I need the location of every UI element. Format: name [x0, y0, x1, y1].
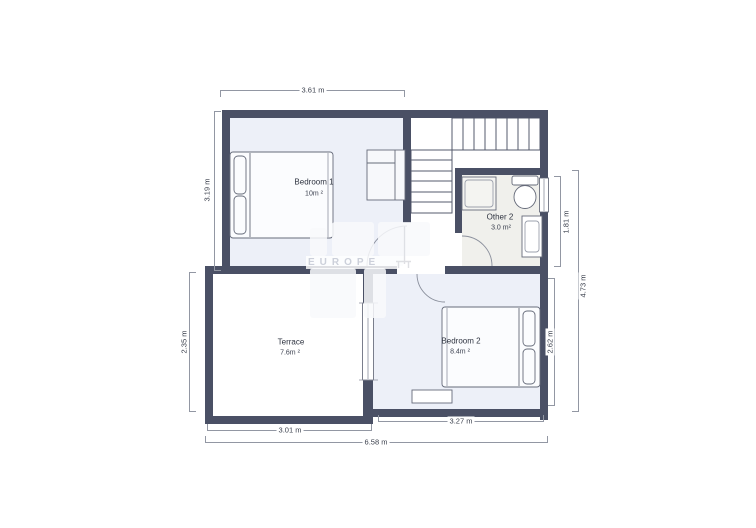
pillow: [523, 311, 535, 346]
dim-label-right-overall: 4.73 m: [579, 273, 588, 300]
wall-terrace-left: [205, 266, 213, 424]
bed-bedroom2: [442, 307, 540, 387]
window-other2: [540, 178, 549, 212]
wall-bedroom1-left: [222, 110, 230, 274]
dim-label-top-bedroom1: 3.61 m: [300, 86, 327, 95]
wall-other2-bottom: [445, 266, 548, 274]
dim-label-right-bedroom2: 2.62 m: [546, 329, 555, 356]
dim-label-left-terrace: 2.35 m: [180, 329, 189, 356]
wall-right: [540, 110, 548, 420]
pillow: [234, 196, 246, 234]
dim-label-left-bedroom1: 3.19 m: [203, 177, 212, 204]
room-area-bedroom1: 10m ²: [305, 191, 323, 198]
room-label-other2: Other 2: [487, 213, 514, 222]
dim-line-left-bedroom1: [214, 111, 221, 271]
dresser-bedroom2: [412, 390, 452, 403]
room-label-bedroom2: Bedroom 2: [441, 337, 480, 346]
wall-top: [222, 110, 548, 118]
watermark-logo-block: [310, 228, 327, 256]
watermark-logo-block: [332, 222, 374, 256]
watermark-logo-block: [378, 222, 430, 256]
wall-other2-left: [455, 168, 462, 233]
wardrobe-bedroom1: [367, 150, 405, 200]
watermark-text: EUROPE: [308, 256, 380, 269]
dim-label-bottom-terrace: 3.01 m: [277, 426, 304, 435]
room-label-bedroom1: Bedroom 1: [294, 178, 333, 187]
toilet-other2: [512, 176, 538, 209]
shower-other2: [462, 177, 496, 210]
room-label-terrace: Terrace: [278, 338, 305, 347]
wall-other2-top: [455, 168, 548, 175]
dim-line-left-terrace: [189, 272, 196, 412]
room-area-other2: 3.0 m²: [491, 225, 511, 232]
pillow: [523, 349, 535, 384]
dim-label-bottom-overall: 6.58 m: [363, 438, 390, 447]
room-area-bedroom2: 8.4m ²: [450, 349, 470, 356]
vanity-other2: [522, 216, 542, 257]
dim-line-right-other2: [554, 176, 561, 267]
watermark-logo-block: [364, 268, 386, 318]
pillow: [234, 156, 246, 194]
dim-label-right-other2: 1.81 m: [562, 209, 571, 236]
wall-terrace-bottom: [205, 416, 373, 424]
room-area-terrace: 7.6m ²: [280, 350, 300, 357]
watermark-logo-block: [310, 268, 356, 318]
floor-plan: EUROPE Bedroom 1 10m ² Other 2 3.0 m² Te…: [0, 0, 756, 528]
dim-label-bottom-bedroom2: 3.27 m: [448, 417, 475, 426]
